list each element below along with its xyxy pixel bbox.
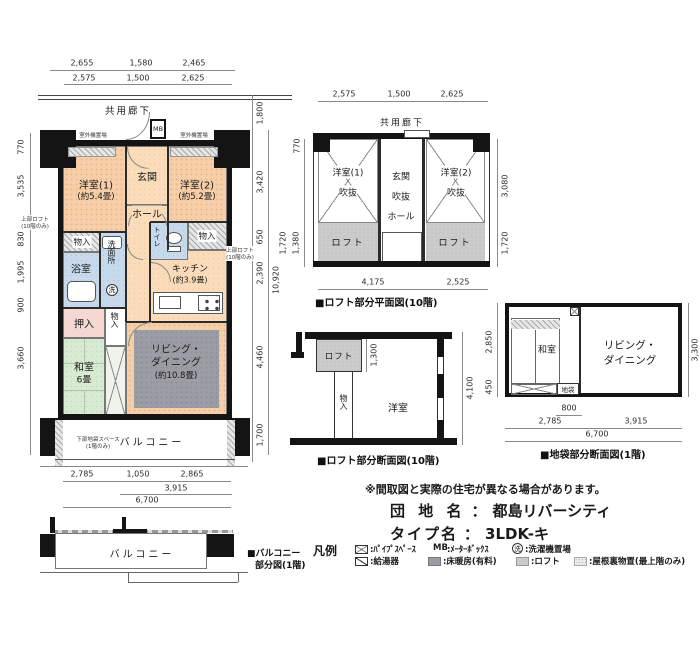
jibukuro-divider bbox=[579, 307, 581, 393]
estate-name-row: 団 地 名：都島リバーシティ bbox=[390, 500, 611, 521]
wall bbox=[167, 146, 169, 250]
estate-name: 都島リバーシティ bbox=[492, 502, 611, 520]
dim-label: 2,625 bbox=[182, 74, 205, 83]
room-label-hall: ホール bbox=[132, 206, 162, 221]
section-loft-label: ロフト bbox=[325, 350, 354, 362]
jibukuro-living-label-2: ダイニング bbox=[604, 353, 657, 368]
dim-label: 3,660 bbox=[17, 347, 26, 370]
balconyfig-edge bbox=[128, 582, 238, 583]
loftplan-corridor-label: 共用廊下 bbox=[380, 116, 424, 129]
mb-label: MB bbox=[153, 125, 163, 133]
dim-label: 2,785 bbox=[539, 417, 562, 426]
room-label-entrance: 玄関 bbox=[137, 169, 157, 184]
dim-label: 900 bbox=[17, 297, 26, 312]
room-size-kitchen: (約3.9畳) bbox=[173, 275, 208, 286]
section-western-label: 洋室 bbox=[388, 400, 408, 415]
legend-attic-label: :屋根裏物置(最上階のみ) bbox=[589, 555, 685, 567]
entrance-door-arc bbox=[126, 112, 150, 140]
dim-line bbox=[268, 130, 269, 455]
balconyfig-label: バルコニー bbox=[110, 546, 175, 561]
floor-heating-icon bbox=[428, 557, 441, 566]
upper-loft-note-right-2: (10階のみ) bbox=[226, 253, 254, 261]
dim-label: 2,850 bbox=[485, 331, 494, 354]
dim-line bbox=[366, 339, 367, 372]
room-label-oshiire: 押入 bbox=[74, 316, 94, 331]
dim-label: 2,655 bbox=[71, 59, 94, 68]
attic-storage-icon bbox=[574, 557, 587, 566]
jibukuro-closet-line bbox=[535, 330, 536, 385]
wall bbox=[125, 146, 127, 322]
section-wall-line bbox=[352, 372, 353, 438]
section-window-seg bbox=[437, 339, 444, 357]
floorplan-sheet: 2,655 1,580 2,465 2,575 1,500 2,625 共用廊下… bbox=[0, 0, 700, 650]
legend-heater-label: :給湯器 bbox=[370, 555, 399, 567]
jibukuro-strip bbox=[105, 346, 126, 416]
dim-label: 3,915 bbox=[625, 417, 648, 426]
dim-label: 1,500 bbox=[127, 74, 150, 83]
room-label-living-2: ダイニング bbox=[151, 354, 201, 369]
wall bbox=[63, 307, 126, 309]
dim-line bbox=[318, 101, 488, 102]
room-label-toilet: トイレ bbox=[152, 226, 162, 247]
column bbox=[214, 130, 250, 168]
type-colon: ： bbox=[464, 525, 479, 543]
wall bbox=[99, 232, 101, 308]
outdoor-unit-label: 室外機置場 bbox=[180, 131, 208, 139]
water-heater-icon bbox=[355, 557, 368, 566]
dim-label: 1,800 bbox=[256, 102, 265, 125]
balconyfig-caption-2: 部分図(1階) bbox=[255, 558, 306, 571]
wall bbox=[378, 139, 381, 267]
room-label-kitchen: キッチン bbox=[172, 262, 208, 275]
loftplan-label-hall: ホール bbox=[387, 210, 414, 223]
loftplan-label-western2: 洋室(2) bbox=[441, 166, 472, 179]
dim-line bbox=[462, 332, 463, 445]
dim-label: 1,300 bbox=[370, 344, 379, 367]
column bbox=[313, 133, 330, 152]
upper-loft-note-left-2: (10階のみ) bbox=[21, 222, 49, 230]
pipe-space-icon bbox=[355, 545, 368, 554]
wall bbox=[58, 140, 63, 420]
legend-pipe-label: :ﾊﾟｲﾌﾟｽﾍﾟｰｽ bbox=[370, 543, 416, 555]
room-size-western1: (約5.4畳) bbox=[77, 190, 114, 202]
stove-burners bbox=[198, 295, 220, 311]
dim-label: 770 bbox=[17, 139, 26, 154]
legend-title: 凡例 bbox=[313, 542, 337, 559]
balconyfig-stub bbox=[50, 517, 55, 533]
dim-label: 1,580 bbox=[130, 59, 153, 68]
legend-washer-label: :洗濯機置場 bbox=[525, 543, 571, 555]
dim-line bbox=[252, 95, 253, 462]
wall bbox=[227, 140, 232, 420]
dim-label: 2,625 bbox=[441, 90, 464, 99]
dim-line bbox=[64, 84, 232, 85]
wall bbox=[313, 261, 490, 267]
dim-label: 830 bbox=[17, 231, 26, 246]
wall bbox=[313, 133, 490, 139]
balconyfig-column bbox=[207, 534, 234, 557]
column bbox=[473, 133, 490, 152]
dim-line bbox=[497, 139, 498, 267]
dim-line bbox=[497, 303, 498, 397]
dim-label: 2,575 bbox=[73, 74, 96, 83]
section-wall-line bbox=[334, 372, 335, 438]
loft-icon bbox=[516, 557, 529, 566]
dim-label: 2,525 bbox=[447, 278, 470, 287]
dim-line bbox=[63, 481, 231, 482]
outdoor-unit-label: 室外機置場 bbox=[79, 131, 107, 139]
loftplan-label-entrance-void: 吹抜 bbox=[392, 190, 410, 203]
section-storage-label: 物入 bbox=[338, 394, 349, 410]
jibukuro-living-label-1: リビング・ bbox=[604, 338, 657, 353]
type-name: 3LDK-キ bbox=[485, 525, 549, 543]
room-label-washroom: 洗面所 bbox=[106, 240, 117, 264]
legend-mb-label: :ﾒｰﾀｰﾎﾞｯｸｽ bbox=[447, 543, 489, 555]
jibukuro-caption: ■地袋部分断面図(1階) bbox=[540, 446, 646, 461]
dim-label: 1,995 bbox=[17, 261, 26, 284]
kitchen-sink bbox=[159, 296, 181, 309]
bathtub bbox=[67, 281, 96, 302]
loftplan-caption: ■ロフト部分平面図(10階) bbox=[315, 294, 438, 309]
type-label: タイプ名 bbox=[390, 525, 458, 543]
dim-line bbox=[688, 303, 689, 397]
tatami-line bbox=[84, 390, 85, 415]
wall bbox=[126, 321, 227, 323]
dim-label: 3,915 bbox=[165, 484, 188, 493]
estate-colon: ： bbox=[471, 502, 486, 520]
legend-floor-heating-label: :床暖房(有料) bbox=[443, 555, 497, 567]
dim-label: 2,785 bbox=[71, 470, 94, 479]
room-size-western2: (約5.2畳) bbox=[178, 190, 215, 202]
dim-line bbox=[318, 289, 488, 290]
room-size-washitsu: 6畳 bbox=[77, 373, 92, 386]
pipe-space-box bbox=[570, 307, 579, 316]
corridor-line bbox=[38, 99, 292, 100]
room-size-living: (約10.8畳) bbox=[155, 369, 198, 381]
balconyfig-edge bbox=[40, 572, 248, 573]
dim-label: 1,380 bbox=[292, 232, 301, 255]
corridor-line bbox=[38, 95, 292, 96]
wall bbox=[58, 140, 232, 146]
washer-place-icon: 洗 bbox=[512, 543, 523, 554]
dim-label: 2,465 bbox=[183, 59, 206, 68]
balcony-label: バルコニー bbox=[120, 434, 185, 449]
jibukuro-closet-shelf bbox=[511, 320, 560, 329]
legend-loft-label: :ロフト bbox=[531, 555, 560, 567]
section-ceiling bbox=[305, 332, 452, 339]
dim-line bbox=[304, 139, 305, 267]
dim-label: 3,535 bbox=[17, 175, 26, 198]
dim-label: 4,460 bbox=[256, 346, 265, 369]
section-left-stub bbox=[291, 352, 304, 358]
type-name-row: タイプ名：3LDK-キ bbox=[390, 523, 549, 544]
dim-label: 6,700 bbox=[136, 496, 159, 505]
loftplan-label-loft-left: ロフト bbox=[331, 236, 364, 249]
room-label-washitsu: 和室 bbox=[74, 359, 94, 374]
outdoor-unit-area bbox=[68, 147, 116, 157]
section-window-seg bbox=[437, 374, 444, 398]
balconyfig-edge bbox=[238, 572, 239, 582]
dim-label: 1,720 bbox=[279, 232, 288, 255]
loftplan-top-notch bbox=[404, 130, 430, 138]
dim-label: 3,080 bbox=[501, 175, 510, 198]
loftplan-label-entrance: 玄関 bbox=[392, 170, 410, 183]
loftplan-label-western2-void: 吹抜 bbox=[447, 186, 465, 199]
outdoor-unit-area bbox=[170, 147, 218, 157]
washer-place-symbol: 洗 bbox=[106, 284, 118, 296]
dim-line bbox=[30, 133, 31, 455]
loft-section-caption: ■ロフト部分断面図(10階) bbox=[317, 452, 440, 467]
dim-label: 1,500 bbox=[388, 90, 411, 99]
dim-label: 800 bbox=[561, 404, 576, 413]
dim-label: 2,575 bbox=[333, 90, 356, 99]
toilet-tank bbox=[167, 246, 181, 252]
dim-label: 770 bbox=[293, 138, 302, 153]
balconyfig-edge bbox=[128, 572, 129, 582]
dim-label: 1,720 bbox=[501, 232, 510, 255]
loftplan-label-western1: 洋室(1) bbox=[333, 166, 364, 179]
dim-label-total: 10,920 bbox=[272, 266, 281, 294]
wall bbox=[422, 139, 425, 267]
loftplan-center-lower bbox=[382, 232, 422, 263]
dim-label: 3,420 bbox=[256, 171, 265, 194]
ground-line bbox=[40, 466, 248, 467]
dim-line bbox=[63, 507, 231, 508]
jibukuro-under-strip bbox=[511, 383, 557, 395]
room-label-storage-center: 物入 bbox=[109, 312, 120, 328]
dim-label: 2,865 bbox=[181, 470, 204, 479]
dim-label: 450 bbox=[485, 379, 494, 394]
loftplan-label-western1-void: 吹抜 bbox=[339, 186, 357, 199]
room-label-bath: 浴室 bbox=[71, 261, 91, 276]
dim-label: 4,100 bbox=[466, 377, 475, 400]
dim-label: 2,390 bbox=[256, 262, 265, 285]
dim-label: 1,700 bbox=[256, 424, 265, 447]
section-floor bbox=[290, 438, 457, 445]
dim-line bbox=[50, 70, 235, 71]
dim-label: 1,050 bbox=[127, 470, 150, 479]
legend-mb-abbr: MB bbox=[433, 543, 448, 553]
wall bbox=[63, 231, 126, 233]
jibukuro-note-2: (1階のみ) bbox=[86, 442, 110, 450]
jibukuro-washitsu-label: 和室 bbox=[537, 343, 557, 356]
disclaimer: ※間取図と実際の住宅が異なる場合があります。 bbox=[365, 481, 606, 497]
room-label-storage-left: 物入 bbox=[72, 236, 91, 248]
dim-line bbox=[505, 441, 682, 442]
dim-label: 3,300 bbox=[691, 339, 700, 362]
room-label-storage-right: 物入 bbox=[197, 230, 216, 242]
loftplan-label-loft-right: ロフト bbox=[438, 236, 471, 249]
jibukuro-box-label: 地袋 bbox=[562, 384, 575, 394]
dim-label: 650 bbox=[256, 229, 265, 244]
dim-label: 6,700 bbox=[586, 430, 609, 439]
dim-label: 4,175 bbox=[362, 278, 385, 287]
estate-label: 団 地 名 bbox=[390, 502, 465, 520]
balcony-edge bbox=[55, 459, 235, 460]
